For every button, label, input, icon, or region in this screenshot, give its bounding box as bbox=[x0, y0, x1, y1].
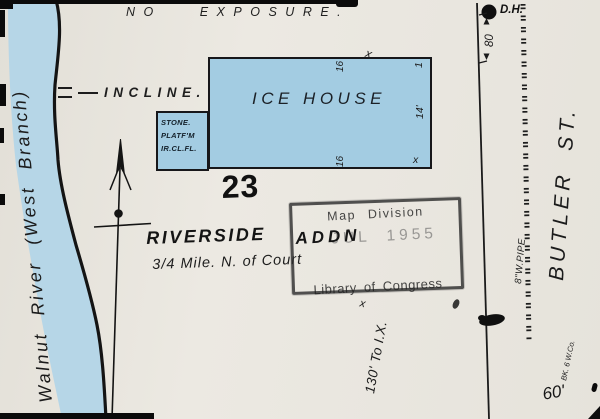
photo-edge-bottom bbox=[0, 413, 154, 419]
height-mark: 14' bbox=[414, 104, 426, 119]
photo-edge-blob bbox=[336, 0, 358, 7]
corner-x-mark: x bbox=[412, 154, 419, 166]
sanborn-map-sheet: Walnut River (West Branch) 130' To I.X. … bbox=[0, 0, 600, 419]
photo-edge-left bbox=[0, 194, 5, 205]
photo-edge-left bbox=[0, 84, 6, 106]
stamp-division-line: Map Division bbox=[292, 203, 459, 226]
wall-height-top: 16 bbox=[335, 60, 346, 72]
stamp-x-mark: x bbox=[358, 297, 367, 310]
wall-height-bottom: 16 bbox=[335, 155, 346, 167]
photo-edge-left bbox=[0, 10, 5, 37]
photo-edge-top bbox=[0, 0, 357, 4]
addition-suffix: ADDN bbox=[295, 226, 361, 249]
stories-mark: 1 bbox=[413, 62, 425, 68]
photo-edge-corner bbox=[0, 0, 13, 9]
roof-x-mark: x bbox=[363, 46, 375, 62]
photo-edge-left bbox=[0, 128, 4, 143]
